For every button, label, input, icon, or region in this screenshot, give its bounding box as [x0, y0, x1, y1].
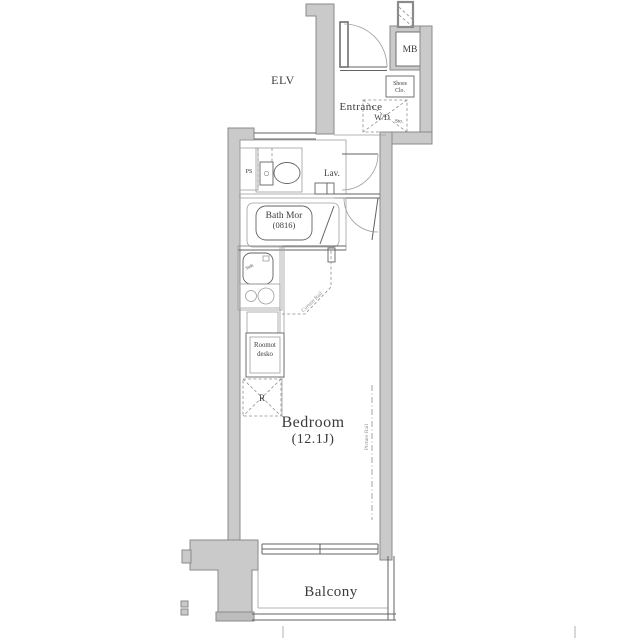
- crop-ticks: [283, 626, 575, 638]
- room-label-elv: ELV: [271, 73, 295, 87]
- room-label-balcony: Balcony: [304, 584, 358, 600]
- label-shoes-closet-1: Shoes: [393, 81, 408, 87]
- floorplan-canvas: ELV MB Entrance Shoes Clo. W/D Sto. PS L…: [0, 0, 640, 640]
- wall-left-nub-1: [182, 550, 191, 563]
- kitchen-cabinet: [247, 312, 278, 333]
- label-washer-dryer: W/D: [374, 113, 390, 122]
- wall-left-nub-2: [181, 601, 188, 607]
- balcony-window: [262, 544, 378, 554]
- wall-column-cap: [216, 612, 254, 621]
- room-label-bedroom: Bedroom: [281, 414, 344, 431]
- burner-small: [246, 291, 257, 302]
- label-washer-dryer-sub: Sto.: [395, 120, 403, 125]
- label-storage-2: desko: [257, 351, 273, 358]
- label-lavatory: Lav.: [324, 168, 340, 178]
- balcony-area: [252, 544, 575, 638]
- floorplan-page: ELV MB Entrance Shoes Clo. W/D Sto. PS L…: [0, 0, 640, 640]
- burner-large: [258, 288, 274, 304]
- kitchen-area: [238, 246, 346, 416]
- lavatory-door-swing: [342, 154, 378, 190]
- toilet-icon: [260, 148, 300, 185]
- hall-door-swing: [344, 198, 378, 232]
- label-storage-1: Roomot: [254, 342, 276, 349]
- lav-partition-lines: [254, 133, 316, 139]
- label-pipe-space: PS: [246, 169, 253, 175]
- label-bathroom-size: (0816): [273, 220, 296, 230]
- entrance-door-leaf: [340, 22, 348, 67]
- lav-counter-box-2: [327, 183, 334, 194]
- wall-left-nub-3: [181, 609, 188, 615]
- label-picture-rail: Picture Rail: [364, 423, 370, 450]
- meter-box-duct: [398, 2, 413, 27]
- room-label-entrance: Entrance: [339, 101, 382, 113]
- label-shoes-closet-2: Clo.: [395, 88, 405, 94]
- toilet-bowl: [274, 163, 300, 184]
- wall-balcony-column: [190, 540, 258, 612]
- wall-entrance-step: [386, 132, 432, 144]
- label-mb: MB: [403, 45, 418, 55]
- bathroom-door-leaf: [320, 206, 334, 244]
- room-label-bedroom-size: (12.1J): [292, 432, 335, 447]
- window-glyph: [262, 544, 378, 554]
- bath-area: [240, 198, 378, 262]
- label-curtain-rail: Curtain Rail: [300, 290, 324, 313]
- wall-right-exterior: [420, 26, 432, 144]
- lav-counter-box-1: [315, 183, 327, 194]
- meter-box-duct-box: [398, 2, 413, 27]
- entrance-door-swing: [344, 24, 387, 67]
- hall-door-leaf: [372, 198, 378, 240]
- lavatory-area: [240, 133, 380, 198]
- toilet-tank: [260, 162, 273, 185]
- wall-elv-shaft: [306, 4, 334, 134]
- hall-threshold: [334, 194, 380, 198]
- label-refrigerator: R: [259, 393, 265, 403]
- wall-right-unit: [380, 132, 392, 560]
- stove-icon: [240, 284, 280, 308]
